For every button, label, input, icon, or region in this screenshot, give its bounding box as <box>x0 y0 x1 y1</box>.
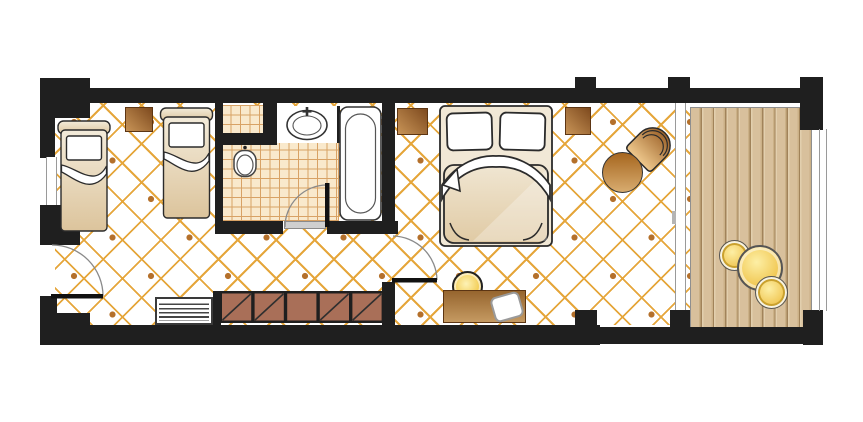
nightstand-icon <box>125 107 153 132</box>
balcony-chair-icon <box>755 276 788 309</box>
wall-top <box>55 88 803 103</box>
bathtub-icon <box>339 106 382 221</box>
single-bed-icon <box>56 119 112 233</box>
entry-door-icon <box>51 244 107 300</box>
bathroom-door-icon <box>283 183 331 231</box>
balcony-railing <box>819 129 827 311</box>
wall-bottom <box>40 325 600 345</box>
wall-bathroom-right <box>382 103 395 234</box>
floor-plan <box>0 0 863 422</box>
sink-icon <box>277 106 337 143</box>
wall-pillar-bottom-1 <box>575 310 597 326</box>
toilet-icon <box>230 143 260 183</box>
shower-shelf-icon <box>221 105 264 134</box>
wall-corner-bottom-right <box>803 310 823 345</box>
wall-bathroom-bottom-left <box>215 221 283 234</box>
wall-bottom-right <box>597 327 822 344</box>
wardrobe-icon <box>220 291 385 323</box>
side-table-icon <box>602 152 643 193</box>
pillow <box>67 136 102 160</box>
sliding-door-icon <box>675 103 686 310</box>
single-bed-icon <box>159 106 214 220</box>
wall-bathroom-left <box>215 103 223 234</box>
wall-pillar-top-2 <box>668 77 690 89</box>
pillow <box>447 112 493 150</box>
wall-bathroom-bottom-right <box>327 221 398 234</box>
wall-left-upper <box>40 103 55 158</box>
bedroom-door-icon <box>390 232 440 282</box>
pillow <box>500 112 546 150</box>
luggage-rack-icon <box>155 297 213 325</box>
nightstand-icon <box>565 107 591 135</box>
balcony-deck <box>690 107 812 329</box>
pillow <box>169 123 204 147</box>
wall-pillar-bottom-2 <box>670 310 690 328</box>
sliding-door-handle <box>672 211 676 224</box>
nightstand-icon <box>397 108 428 135</box>
double-bed-icon <box>439 105 553 247</box>
wall-pillar-top-1 <box>575 77 596 89</box>
wall-corner-top-right <box>800 77 823 130</box>
